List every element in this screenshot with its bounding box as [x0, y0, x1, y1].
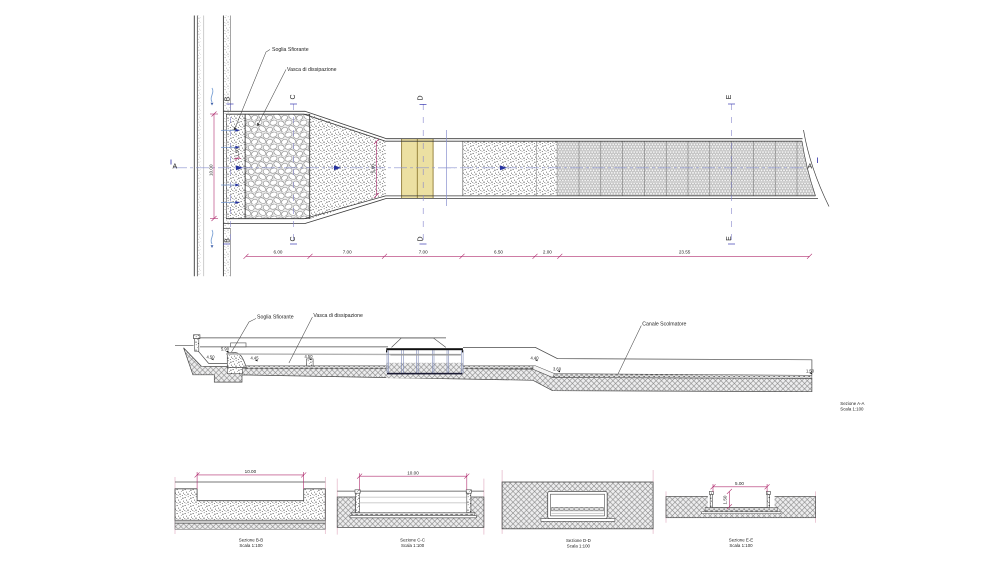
svg-text:Sezione A-A: Sezione A-A — [840, 401, 864, 406]
svg-text:1.50: 1.50 — [722, 495, 727, 504]
svg-text:A: A — [808, 164, 813, 171]
svg-text:D: D — [418, 95, 425, 100]
svg-text:C: C — [290, 236, 297, 241]
svg-text:E: E — [726, 94, 733, 99]
svg-text:B: B — [225, 238, 232, 243]
svg-text:4.45: 4.45 — [251, 356, 260, 361]
svg-text:Scala 1:100: Scala 1:100 — [239, 543, 263, 548]
svg-text:5.90: 5.90 — [221, 347, 230, 352]
svg-text:10.00: 10.00 — [245, 469, 257, 474]
svg-text:4.40: 4.40 — [531, 355, 540, 360]
svg-text:6.50: 6.50 — [494, 250, 503, 255]
svg-text:1.50: 1.50 — [234, 148, 239, 157]
svg-text:Soglia Sfiorante: Soglia Sfiorante — [257, 314, 294, 320]
svg-text:2.00: 2.00 — [543, 250, 552, 255]
svg-text:6.00: 6.00 — [274, 250, 283, 255]
svg-text:4.50: 4.50 — [207, 354, 216, 359]
svg-text:23.55: 23.55 — [679, 250, 691, 255]
svg-text:Sezione C-C: Sezione C-C — [400, 538, 425, 543]
svg-text:7.00: 7.00 — [419, 250, 428, 255]
svg-text:Vasca di dissipazione: Vasca di dissipazione — [313, 313, 363, 319]
svg-text:10.00: 10.00 — [208, 164, 213, 176]
svg-text:3.60: 3.60 — [553, 366, 562, 371]
svg-text:Canale Scolmatore: Canale Scolmatore — [642, 321, 686, 327]
svg-text:Sezione E-E: Sezione E-E — [729, 538, 753, 543]
svg-text:5.00: 5.00 — [735, 481, 744, 486]
svg-text:Scala 1:100: Scala 1:100 — [567, 543, 591, 548]
svg-text:5.00: 5.00 — [371, 164, 376, 173]
svg-text:Sezione B-B: Sezione B-B — [239, 538, 263, 543]
svg-text:Scala 1:100: Scala 1:100 — [401, 543, 425, 548]
svg-text:Soglia Sfiorante: Soglia Sfiorante — [272, 47, 309, 53]
svg-text:B: B — [225, 96, 232, 101]
svg-text:E: E — [726, 236, 733, 241]
svg-text:Scala 1:100: Scala 1:100 — [729, 543, 753, 548]
svg-text:Vasca di dissipazione: Vasca di dissipazione — [287, 67, 337, 73]
svg-text:D: D — [418, 236, 425, 241]
svg-text:10.00: 10.00 — [407, 470, 419, 475]
svg-text:C: C — [290, 94, 297, 99]
svg-text:A: A — [173, 164, 178, 171]
svg-text:Sezione D-D: Sezione D-D — [566, 538, 591, 543]
svg-text:4.50: 4.50 — [305, 354, 314, 359]
svg-text:7.00: 7.00 — [343, 250, 352, 255]
svg-text:Scala 1:100: Scala 1:100 — [840, 406, 864, 411]
svg-text:1.50: 1.50 — [806, 368, 815, 373]
